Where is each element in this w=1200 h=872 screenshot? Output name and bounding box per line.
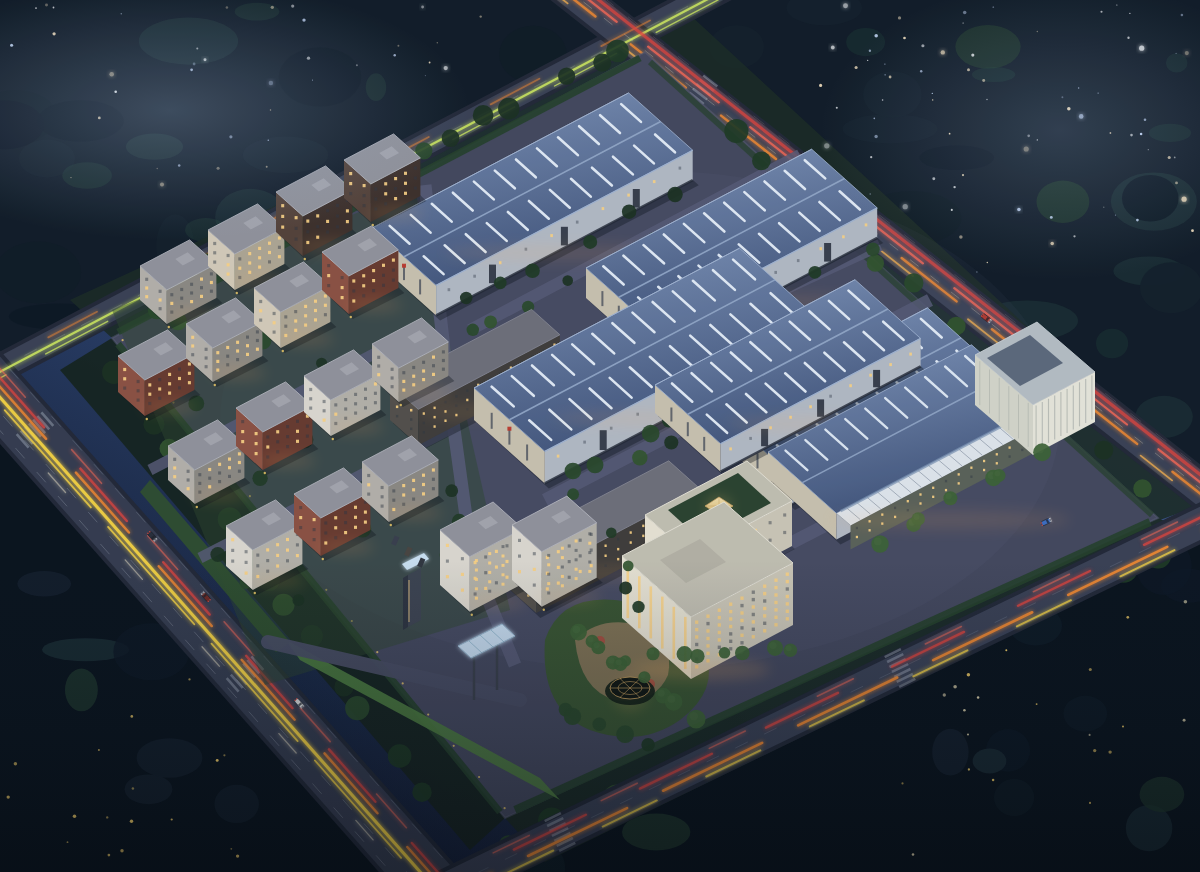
scene-canvas [0, 0, 1200, 872]
layer-atmosphere [0, 0, 1200, 872]
aerial-rendering-industrial-park [0, 0, 1200, 872]
